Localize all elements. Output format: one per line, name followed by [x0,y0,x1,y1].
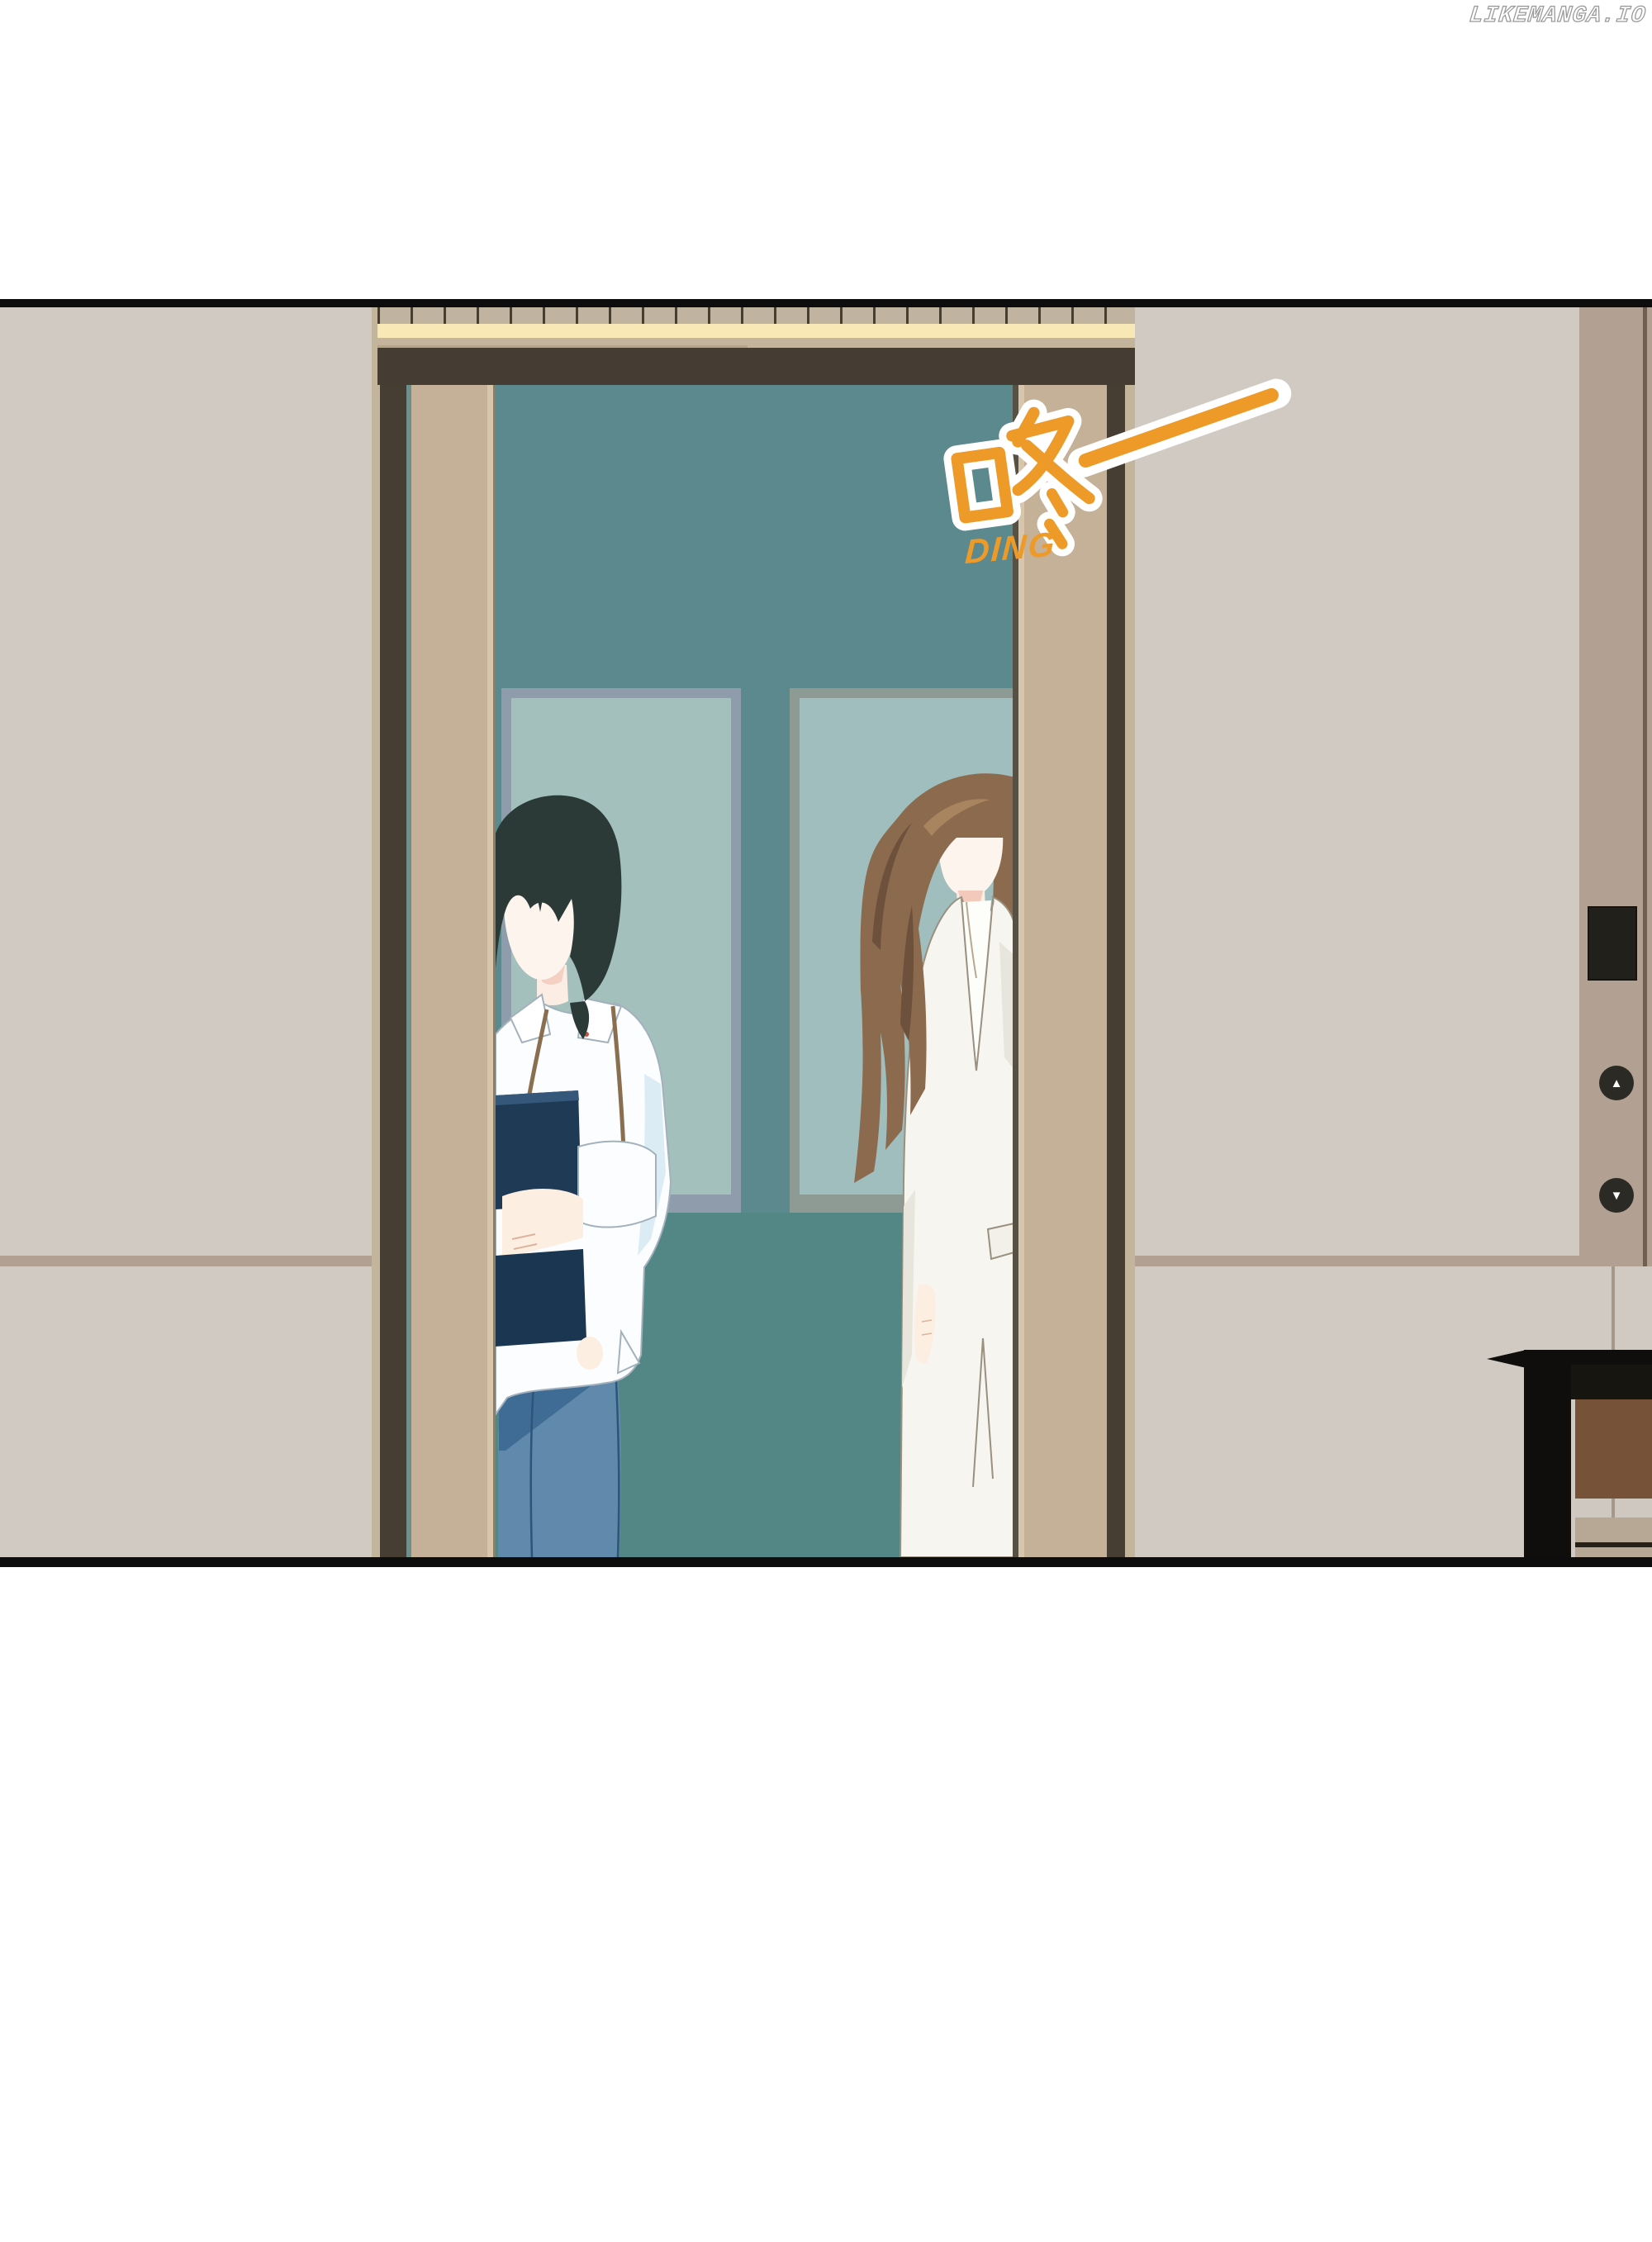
arrow-down-icon: ▼ [1611,1190,1623,1202]
elevator-mirror-glass-left [511,698,731,1195]
desk-gap-seam [1612,1499,1615,1518]
wall-seam-vertical [1612,1266,1615,1351]
door-jamb-right [1107,348,1125,1557]
manga-page: LIKEMANGA.IO ▲ ▼ [0,0,1652,2242]
wall-seam-right [1135,1256,1579,1266]
desk-drawer-lower [1575,1547,1652,1557]
wall-seam-left [0,1256,377,1266]
elevator-mirror-glass-right [800,698,1019,1195]
call-panel-edge [1643,307,1647,1266]
panel-border-bottom [0,1557,1652,1567]
door-frame-edge-left [372,307,380,1557]
desk-underside [1571,1365,1652,1399]
door-jamb-left [380,348,406,1557]
panel-border-top [0,299,1652,307]
door-left-rim [487,385,493,1557]
lintel-yellow-strip [377,324,1135,338]
elevator-up-button: ▲ [1599,1066,1634,1100]
lintel-dark-band [377,348,1135,385]
elevator-door-left [411,385,496,1557]
elevator-interior-lower [406,1213,1107,1557]
door-left-edge [493,385,496,1557]
door-track-strip [377,307,1135,324]
door-frame-edge-right [1125,307,1135,1557]
site-watermark: LIKEMANGA.IO [1371,3,1647,36]
desk-cabinet-panel [1575,1399,1652,1499]
arrow-up-icon: ▲ [1611,1077,1623,1090]
floor-indicator-display [1588,906,1637,981]
desk-drawer-upper [1575,1518,1652,1542]
desk-top-corner [1487,1350,1526,1368]
elevator-call-panel [1579,307,1652,1266]
desk-leg [1524,1365,1571,1557]
elevator-down-button: ▼ [1599,1178,1634,1213]
wall-left [0,307,377,1557]
